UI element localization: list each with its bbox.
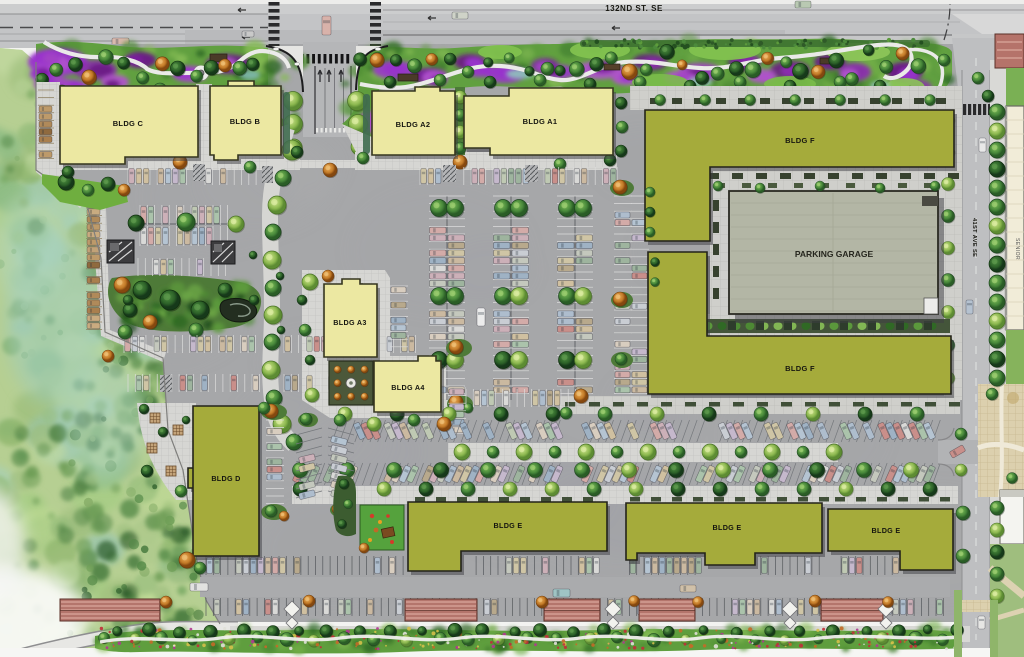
svg-text:132ND ST. SE: 132ND ST. SE [605,4,663,13]
svg-text:BLDG E: BLDG E [713,523,742,532]
svg-text:BLDG E: BLDG E [872,526,901,535]
svg-text:BLDG A2: BLDG A2 [396,120,431,129]
svg-text:BLDG E: BLDG E [494,521,523,530]
svg-text:BLDG F: BLDG F [785,136,815,145]
svg-text:PARKING GARAGE: PARKING GARAGE [795,249,874,259]
svg-text:BLDG D: BLDG D [211,474,240,483]
svg-text:BLDG A3: BLDG A3 [333,318,366,327]
svg-text:BLDG F: BLDG F [785,364,815,373]
svg-text:41ST AVE SE: 41ST AVE SE [971,218,977,257]
svg-text:BLDG B: BLDG B [230,117,261,126]
svg-text:SENIOR: SENIOR [1014,238,1020,260]
svg-text:BLDG C: BLDG C [113,119,144,128]
svg-text:BLDG A1: BLDG A1 [523,117,558,126]
svg-text:BLDG A4: BLDG A4 [391,383,424,392]
